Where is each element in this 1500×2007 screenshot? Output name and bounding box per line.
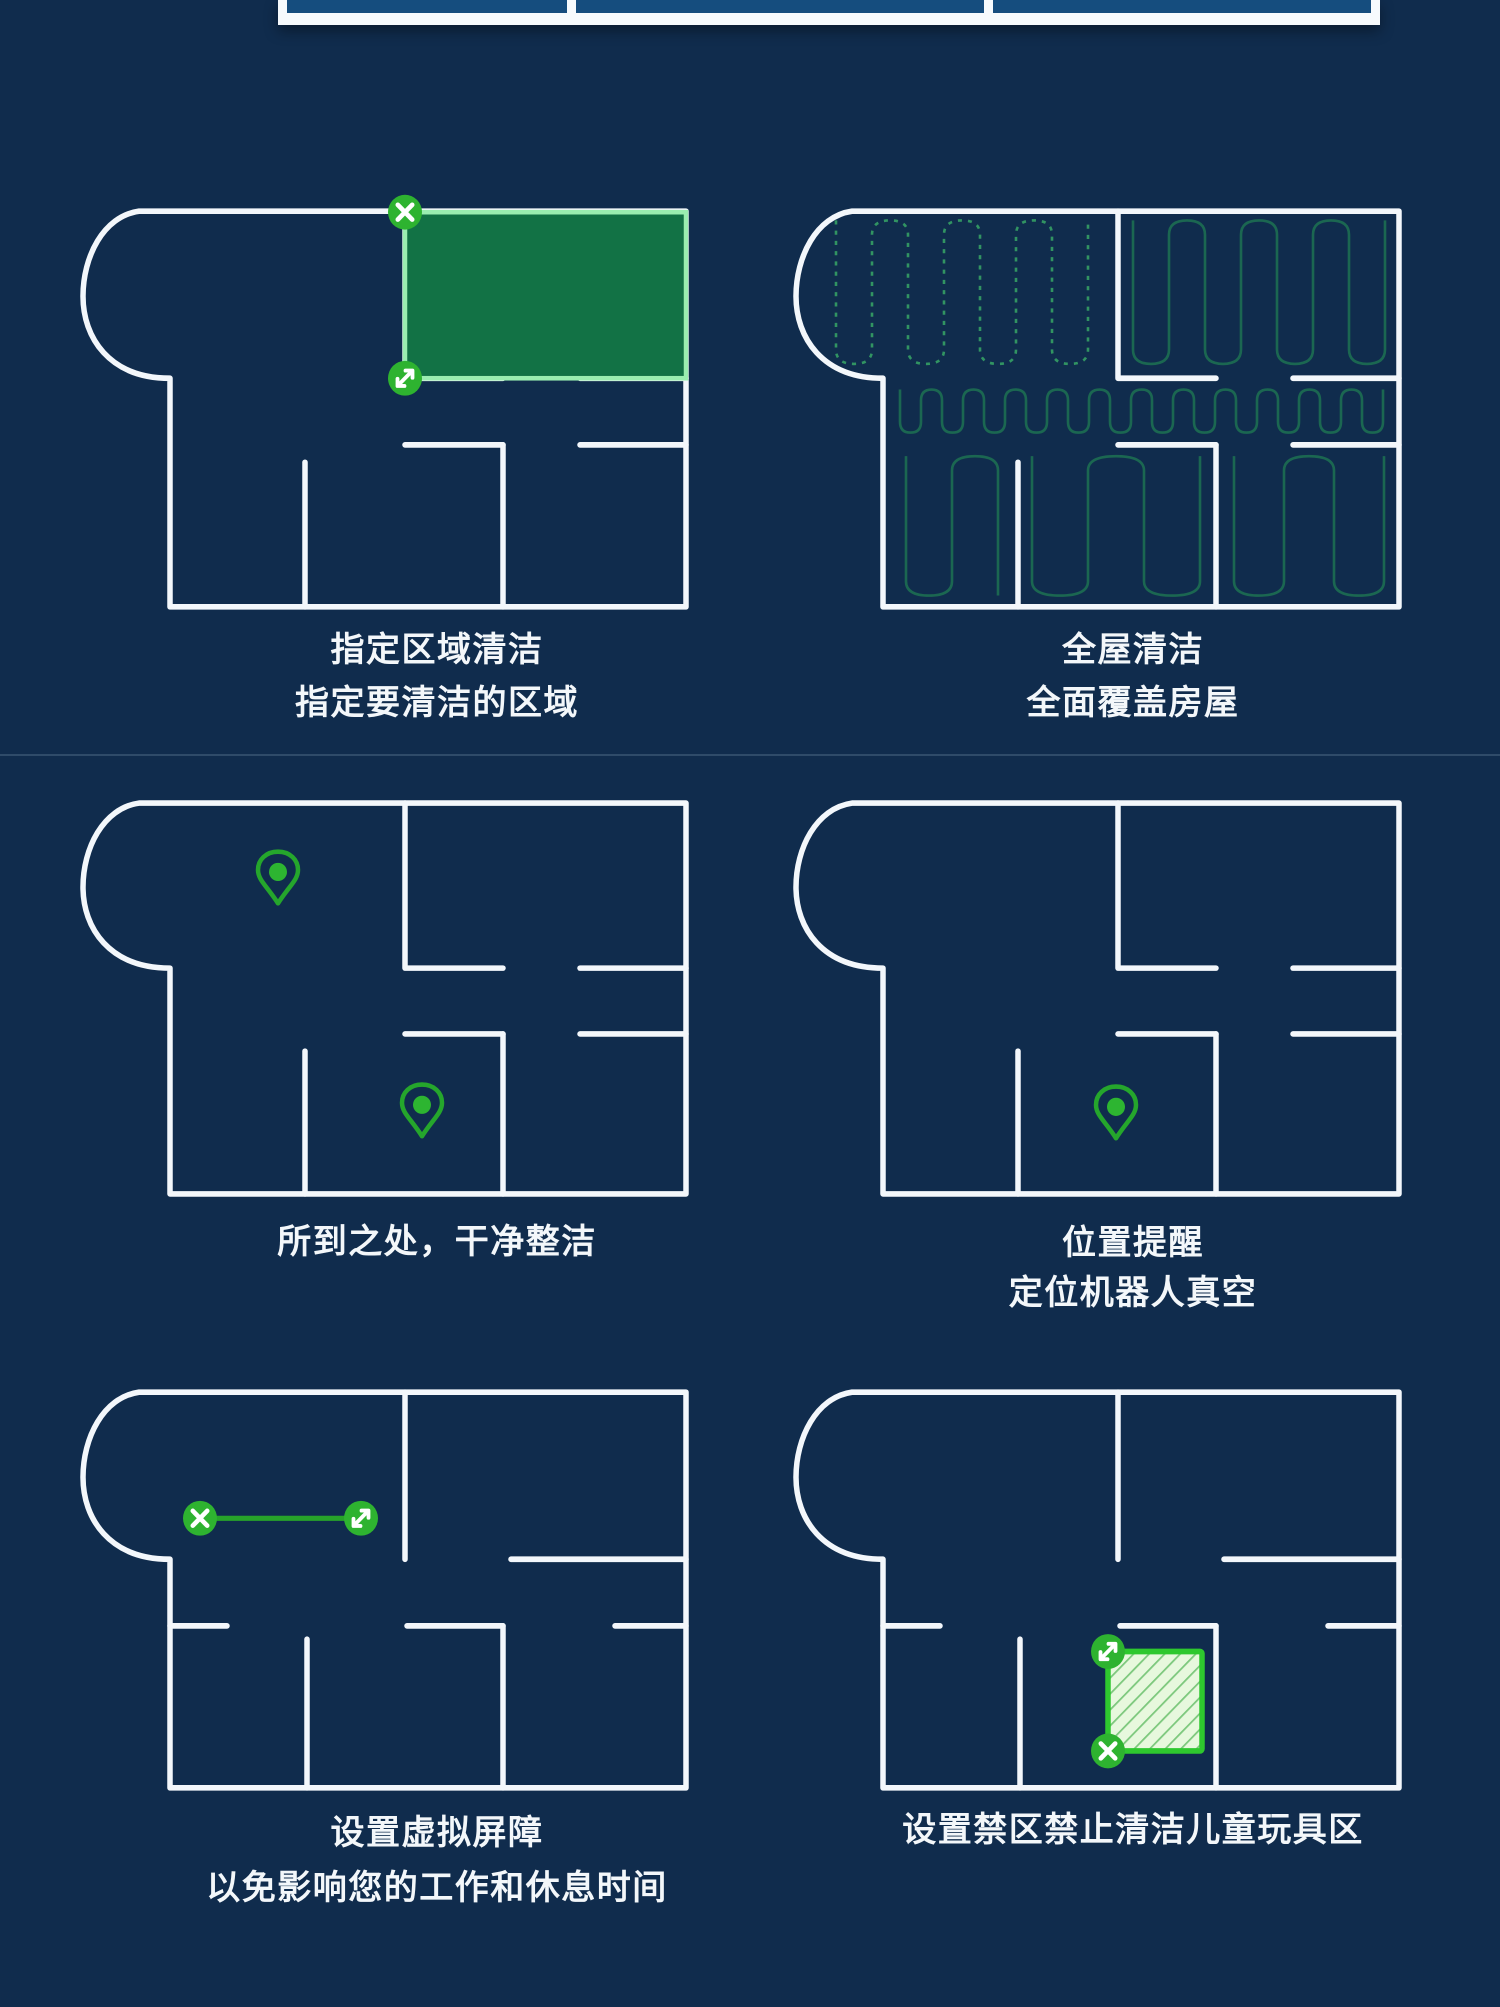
- serpentine-path: [906, 456, 998, 595]
- close-marker-icon[interactable]: [1091, 1734, 1125, 1769]
- floor-plan-walls: [796, 211, 1399, 607]
- floor-plan-clean-everywhere: [75, 796, 695, 1201]
- table-border: [1371, 0, 1380, 14]
- close-marker-icon[interactable]: [183, 1501, 217, 1536]
- cleaning-zone-rectangle[interactable]: [405, 212, 686, 378]
- location-pin-icon[interactable]: [1096, 1087, 1136, 1139]
- table-bottom-edge: [278, 13, 1380, 25]
- product-page-section: 指定区域清洁 指定要清洁的区域 全屋清洁 全面覆盖房屋 所到之处，干净整洁 位置…: [0, 0, 1500, 2007]
- serpentine-path: [1133, 220, 1385, 364]
- caption-virtual-barrier-line1: 设置虚拟屏障: [159, 1813, 715, 1853]
- resize-marker-icon[interactable]: [1091, 1634, 1125, 1669]
- resize-marker-icon[interactable]: [344, 1501, 378, 1536]
- serpentine-cleaning-paths: [836, 220, 1385, 595]
- caption-zone-cleaning-line2: 指定要清洁的区域: [159, 683, 715, 723]
- floor-plan-virtual-barrier: [75, 1385, 695, 1795]
- floor-plan-walls: [796, 1392, 1399, 1788]
- floor-plan-walls: [83, 803, 686, 1194]
- table-border: [984, 0, 993, 14]
- floor-plan-no-go-zone: [788, 1385, 1408, 1795]
- table-border: [278, 0, 287, 14]
- serpentine-path: [1032, 456, 1200, 595]
- serpentine-path: [900, 390, 1383, 433]
- location-pin-icon[interactable]: [258, 852, 298, 904]
- floor-plan-location-alert: [788, 796, 1408, 1201]
- caption-whole-house-line1: 全屋清洁: [855, 630, 1411, 670]
- resize-marker-icon[interactable]: [388, 361, 422, 396]
- caption-no-go-zone: 设置禁区禁止清洁儿童玩具区: [855, 1810, 1411, 1850]
- caption-virtual-barrier-line2: 以免影响您的工作和休息时间: [159, 1868, 715, 1908]
- location-pin-icon[interactable]: [402, 1085, 442, 1137]
- caption-clean-everywhere: 所到之处，干净整洁: [159, 1222, 715, 1262]
- close-marker-icon[interactable]: [388, 195, 422, 230]
- serpentine-path: [1234, 456, 1384, 595]
- table-border: [567, 0, 576, 14]
- serpentine-path: [836, 220, 1088, 364]
- section-divider: [0, 754, 1500, 756]
- caption-zone-cleaning-line1: 指定区域清洁: [159, 630, 715, 670]
- floor-plan-whole-house-cleaning: [788, 204, 1408, 614]
- floor-plan-walls: [83, 1392, 686, 1788]
- caption-whole-house-line2: 全面覆盖房屋: [855, 683, 1411, 723]
- no-go-hatched-square[interactable]: [1108, 1652, 1202, 1751]
- previous-section-table-remnant: [278, 0, 1380, 25]
- floor-plan-zone-cleaning: [75, 204, 695, 614]
- caption-location-alert-line1: 位置提醒: [855, 1223, 1411, 1263]
- floor-plan-walls: [796, 803, 1399, 1194]
- caption-location-alert-line2: 定位机器人真空: [855, 1273, 1411, 1313]
